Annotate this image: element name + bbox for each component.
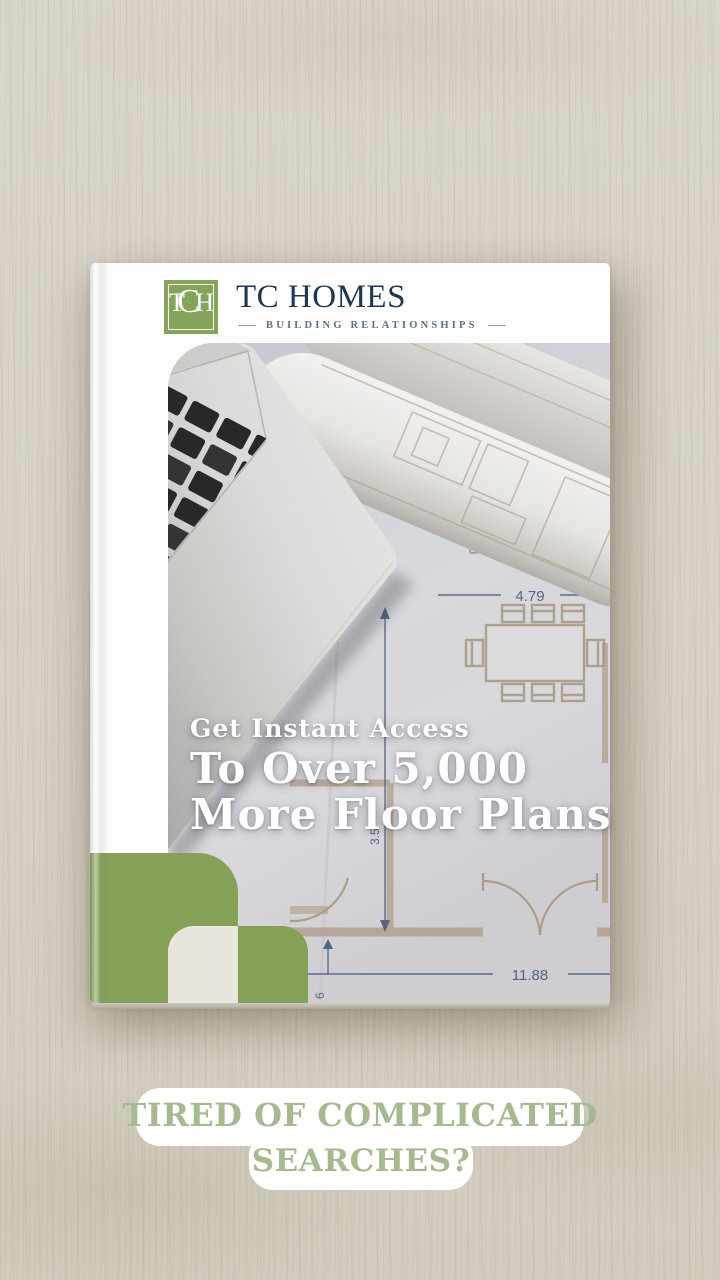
cover-title-line1: Get Instant Access (190, 716, 611, 741)
brand-name: TC HOMES (236, 279, 506, 316)
green-corner-square (238, 926, 308, 1003)
book-page-edge (92, 1002, 609, 1009)
dim-edge-label: 6 (313, 992, 327, 999)
cream-corner-square (168, 926, 238, 1003)
banner-line2-text: SEARCHES? (252, 1143, 470, 1179)
tagline-row: BUILDING RELATIONSHIPS (238, 320, 506, 331)
cover-title-line3: More Floor Plans (190, 794, 611, 836)
cover-title: Get Instant Access To Over 5,000 More Fl… (190, 716, 611, 836)
brand-block: TC HOMES BUILDING RELATIONSHIPS (236, 279, 506, 331)
cover-title-line2: To Over 5,000 (190, 748, 611, 790)
tagline-dash-left (238, 325, 256, 327)
tch-monogram: T H C (164, 280, 218, 334)
banner-line1-text: TIRED OF COMPLICATED (122, 1096, 597, 1134)
tc-homes-logo: T H C (164, 280, 218, 334)
dim-top-label: 4.79 (515, 588, 544, 605)
monogram-letter-c: C (177, 285, 200, 319)
dim-bottom-label: 11.88 (512, 967, 548, 984)
brand-tagline: BUILDING RELATIONSHIPS (266, 320, 478, 331)
banner-line2-box: SEARCHES? (249, 1132, 473, 1190)
tagline-dash-right (488, 325, 506, 327)
ebook-cover-mockup: T H C TC HOMES BUILDING RELATIONSHIPS (90, 263, 610, 1003)
